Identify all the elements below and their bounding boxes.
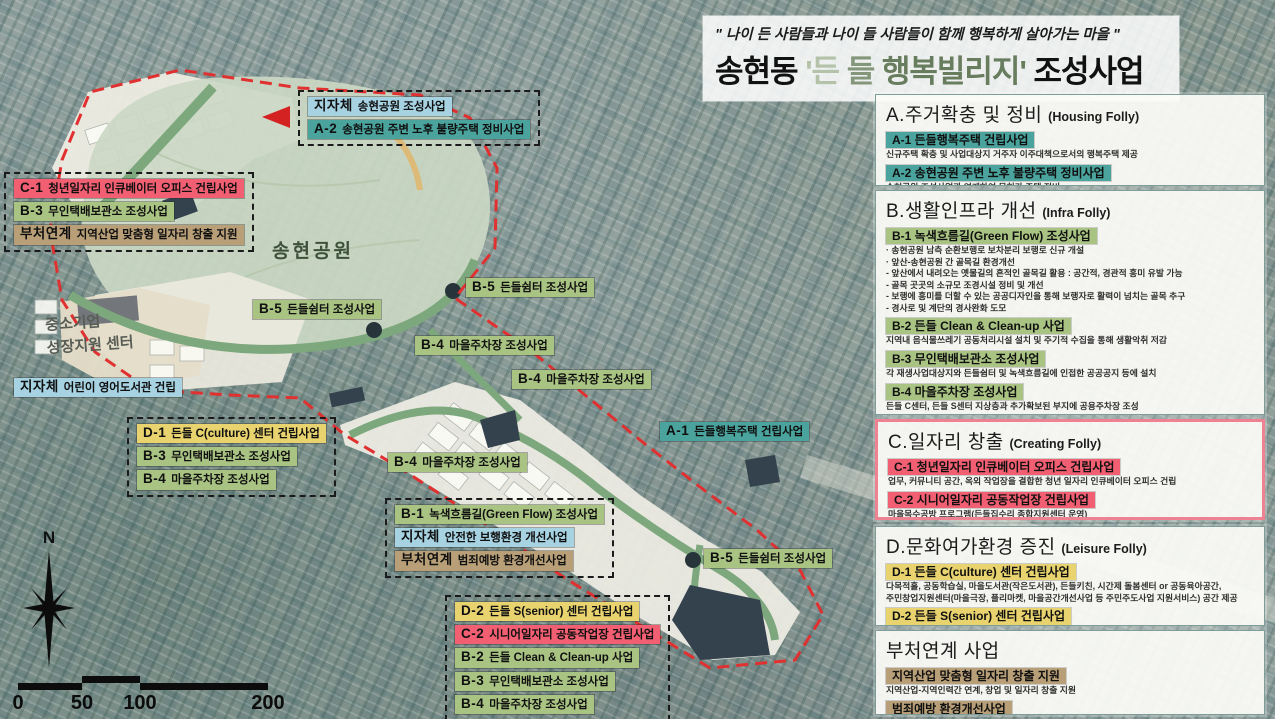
section-heading-ko: D.문화여가환경 증진: [886, 537, 1056, 558]
scale-tick: 0: [12, 692, 23, 715]
callout-box-west: C-1 청년일자리 인큐베이터 오피스 건립사업 B-3 무인택배보관소 조성사…: [4, 172, 254, 252]
scale-bar-bottom-row: [18, 683, 268, 690]
legend-item-desc: 지역내 음식물쓰레기 공동처리시설 설치 및 주기적 수집을 통해 생활악취 저…: [886, 335, 1254, 346]
label-prefix: C-1: [20, 180, 43, 196]
satellite-background: 송현공원 중소기업 성장지원 센터 지자체 송현공원 조성사업 A-2 송현공원…: [0, 0, 1275, 719]
label-prefix: B-2: [461, 649, 484, 665]
legend-item-label: B-3 무인택배보관소 조성사업: [886, 351, 1045, 367]
label-b2-cleanup: B-2 든들 Clean & Clean-up 사업: [455, 648, 639, 667]
park-name-label: 송현공원: [272, 236, 354, 263]
section-heading-ko: A.주거확충 및 정비: [886, 105, 1042, 126]
title-part: 들: [839, 54, 874, 89]
scale-bar: 0 50 100 200: [18, 676, 268, 716]
legend-item: C-1 청년일자리 인큐베이터 오피스 건립사업 업무, 커뮤니티 공간, 옥외…: [888, 457, 1252, 488]
legend-section-jobs: C.일자리 창출 (Creating Folly) C-1 청년일자리 인큐베이…: [875, 419, 1265, 520]
label-b3-lockers: B-3 무인택배보관소 조성사업: [14, 202, 174, 221]
label-text: 시니어일자리 공동작업장 건립사업: [489, 629, 654, 642]
title-part: 송현동: [715, 54, 805, 89]
section-heading: C.일자리 창출 (Creating Folly): [888, 427, 1252, 454]
label-text: 지역산업 맞춤형 일자리 창출 지원: [77, 229, 238, 242]
label-text: 마을주차장 조성사업: [489, 699, 587, 712]
legend-section-housing: A.주거확충 및 정비 (Housing Folly) A-1 든들행복주택 건…: [875, 94, 1265, 186]
label-prefix: A-2: [314, 121, 337, 137]
label-text: 마을주차장 조성사업: [449, 340, 547, 353]
legend-item-desc: 든들 C센터, 든들 S센터 지상층과 추가확보된 부지에 공용주차장 조성: [886, 401, 1254, 412]
legend-item-label: C-1 청년일자리 인큐베이터 오피스 건립사업: [888, 459, 1120, 475]
label-prefix: D-2: [461, 603, 484, 619]
scale-tick: 50: [71, 692, 93, 715]
label-prefix: A-1: [666, 423, 689, 439]
compass-star-icon: [19, 548, 79, 670]
label-prefix: B-4: [518, 371, 541, 387]
label-prefix: D-1: [143, 425, 166, 441]
label-prefix: B-5: [259, 301, 282, 317]
callout-box-park-north: 지자체 송현공원 조성사업 A-2 송현공원 주변 노후 불량주택 정비사업: [298, 90, 540, 146]
label-text: 어린이 영어도서관 건립: [64, 382, 176, 395]
legend-item: 지역산업 맞춤형 일자리 창출 지원 지역산업-지역인력간 연계, 창업 및 일…: [886, 666, 1254, 697]
map-chip-a1-happiness-housing: A-1 든들행복주택 건립사업: [660, 422, 809, 441]
legend-section-leisure: D.문화여가환경 증진 (Leisure Folly) D-1 든들 C(cul…: [875, 526, 1265, 626]
label-text: 청년일자리 인큐베이터 오피스 건립사업: [48, 183, 237, 196]
label-text: 든들 S(senior) 센터 건립사업: [489, 606, 633, 619]
label-prefix: B-4: [421, 337, 444, 353]
title-part: 행복빌리지': [874, 54, 1026, 89]
label-prefix: 부처연계: [20, 226, 72, 242]
section-heading: B.생활인프라 개선 (Infra Folly): [886, 196, 1254, 223]
legend-item-desc: 신규주택 확충 및 사업대상지 거주자 이주대책으로서의 행복주택 제공: [886, 149, 1254, 160]
scale-bar-top-row: [18, 676, 268, 683]
legend-section-ministry: 부처연계 사업 지역산업 맞춤형 일자리 창출 지원 지역산업-지역인력간 연계…: [875, 630, 1265, 715]
label-text: 든들쉼터 조성사업: [738, 553, 826, 566]
scale-ticks: 0 50 100 200: [18, 692, 268, 716]
legend-item: D-1 든들 C(culture) 센터 건립사업 다목적홀, 공동학습실, 마…: [886, 562, 1254, 604]
legend-item: C-2 시니어일자리 공동작업장 건립사업 마을목수공방 프로그램(든들집수리 …: [888, 490, 1252, 520]
legend-item-label: B-1 녹색흐름길(Green Flow) 조성사업: [886, 228, 1097, 244]
label-b3-lockers: B-3 무인택배보관소 조성사업: [137, 447, 297, 466]
label-prefix: B-3: [143, 448, 166, 464]
label-prefix: B-5: [472, 279, 495, 295]
label-prefix: B-3: [20, 203, 43, 219]
section-heading: A.주거확충 및 정비 (Housing Folly): [886, 100, 1254, 127]
section-heading-ko: B.생활인프라 개선: [886, 201, 1037, 222]
legend-item-desc: 마을목수공방 프로그램(든들집수리 종합지원센터 운영) 시니어 일자리 지원센…: [888, 509, 1252, 520]
label-prefix: B-4: [394, 454, 417, 470]
callout-box-culture-center: D-1 든들 C(culture) 센터 건립사업 B-3 무인택배보관소 조성…: [127, 417, 336, 497]
label-park-project: 지자체 송현공원 조성사업: [308, 97, 452, 116]
legend-item-label: C-2 시니어일자리 공동작업장 건립사업: [888, 492, 1095, 508]
label-b3-lockers: B-3 무인택배보관소 조성사업: [455, 672, 615, 691]
section-heading-en: (Infra Folly): [1042, 206, 1110, 220]
legend-item: B-3 무인택배보관소 조성사업 각 재생사업대상지와 든들쉼터 및 녹색흐름길…: [886, 349, 1254, 380]
label-text: 든들행복주택 건립사업: [694, 426, 803, 439]
map-chip-b5-south: B-5 든들쉼터 조성사업: [704, 549, 832, 568]
legend-item-label: B-4 마을주차장 조성사업: [886, 384, 1023, 400]
label-text: 송현공원 조성사업: [358, 101, 446, 114]
callout-box-senior-center: D-2 든들 S(senior) 센터 건립사업 C-2 시니어일자리 공동작업…: [445, 595, 670, 719]
compass-rose: N: [16, 528, 82, 676]
legend-item: A-2 송현공원 주변 노후 불량주택 정비사업 송현공원 조성사업과 연계하여…: [886, 163, 1254, 186]
legend-item-desc: 지역산업-지역인력간 연계, 창업 및 일자리 창출 지원: [886, 685, 1254, 696]
label-text: 든들쉼터 조성사업: [500, 282, 588, 295]
callout-box-green-flow: B-1 녹색흐름길(Green Flow) 조성사업 지자체 안전한 보행환경 …: [385, 498, 614, 578]
label-prefix: 지자체: [401, 529, 440, 545]
section-heading-ko: C.일자리 창출: [888, 432, 1004, 453]
scale-tick: 100: [123, 692, 156, 715]
sme-center-label: 중소기업 성장지원 센터: [45, 309, 135, 360]
label-c2-senior-workshop: C-2 시니어일자리 공동작업장 건립사업: [455, 625, 660, 644]
map-chip-childrens-library: 지자체 어린이 영어도서관 건립: [14, 378, 182, 397]
label-prefix: B-4: [461, 696, 484, 712]
section-heading-en: (Housing Folly): [1048, 110, 1139, 124]
label-a2-housing-renewal: A-2 송현공원 주변 노후 불량주택 정비사업: [308, 120, 530, 139]
legend-item-label: 지역산업 맞춤형 일자리 창출 지원: [886, 668, 1066, 684]
label-prefix: B-3: [461, 673, 484, 689]
label-text: 무인택배보관소 조성사업: [48, 206, 168, 219]
section-heading: 부처연계 사업: [886, 636, 1254, 663]
map-chip-b5-east: B-5 든들쉼터 조성사업: [466, 278, 594, 297]
label-text: 범죄예방 환경개선사업: [458, 555, 567, 568]
title-part: 조성사업: [1026, 54, 1144, 89]
page-title: 송현동 '든 들 행복빌리지' 조성사업: [715, 46, 1167, 91]
label-b4-parking: B-4 마을주차장 조성사업: [137, 470, 276, 489]
legend-item: B-1 녹색흐름길(Green Flow) 조성사업 · 송현공원 남측 순환보…: [886, 226, 1254, 314]
legend-item: B-5 든들쉼터 조성사업 송현공원 인근 보행로와 연계하여 쌈지공간을 활용…: [886, 414, 1254, 415]
label-b4-parking: B-4 마을주차장 조성사업: [455, 695, 594, 714]
legend-item: B-2 든들 Clean & Clean-up 사업 지역내 음식물쓰레기 공동…: [886, 316, 1254, 347]
label-text: 마을주차장 조성사업: [422, 457, 520, 470]
label-prefix: B-1: [401, 506, 424, 522]
legend-item-label: D-1 든들 C(culture) 센터 건립사업: [886, 564, 1076, 580]
legend-item: 범죄예방 환경개선사업 범죄취약지역 발굴 및 개선 등을 통해 골목길 환경 …: [886, 699, 1254, 715]
label-text: 녹색흐름길(Green Flow) 조성사업: [429, 509, 598, 522]
label-c1-incubator: C-1 청년일자리 인큐베이터 오피스 건립사업: [14, 179, 244, 198]
map-chip-b4-3: B-4 마을주차장 조성사업: [388, 453, 527, 472]
label-text: 마을주차장 조성사업: [171, 474, 269, 487]
title-block: " 나이 든 사람들과 나이 들 사람들이 함께 행복하게 살아가는 마을 " …: [703, 16, 1179, 101]
legend-item-label: 범죄예방 환경개선사업: [886, 701, 1012, 715]
label-text: 무인택배보관소 조성사업: [489, 676, 609, 689]
legend-item-label: B-2 든들 Clean & Clean-up 사업: [886, 318, 1071, 334]
legend-item-desc: 각 재생사업대상지와 든들쉼터 및 녹색흐름길에 인접한 공공공지 등에 설치: [886, 368, 1254, 379]
label-text: 마을주차장 조성사업: [546, 374, 644, 387]
label-prefix: C-2: [461, 626, 484, 642]
map-chip-b4-1: B-4 마을주차장 조성사업: [415, 336, 554, 355]
label-text: 안전한 보행환경 개선사업: [445, 532, 568, 545]
label-prefix: 부처연계: [401, 552, 453, 568]
map-chip-b5-park: B-5 든들쉼터 조성사업: [253, 300, 381, 319]
label-d2-senior-center: D-2 든들 S(senior) 센터 건립사업: [455, 602, 639, 621]
legend-item-desc: 송현공원 조성사업과 연계하여 무허가 주택 정비: [886, 182, 1254, 186]
scale-tick: 200: [251, 692, 284, 715]
legend-item-desc: 다목적홀, 공동학습실, 마을도서관(작은도서관), 든들키친, 시간제 돌봄센…: [886, 581, 1254, 604]
map-chip-b4-2: B-4 마을주차장 조성사업: [512, 370, 651, 389]
label-crime-prevention: 부처연계 범죄예방 환경개선사업: [395, 551, 573, 570]
legend-item-desc: 업무, 커뮤니티 공간, 옥외 작업장을 결합한 청년 일자리 인큐베이터 오피…: [888, 476, 1252, 487]
compass-north-label: N: [16, 528, 82, 548]
label-safe-walk: 지자체 안전한 보행환경 개선사업: [395, 528, 574, 547]
title-part: '든: [805, 54, 839, 89]
label-text: 든들쉼터 조성사업: [287, 304, 375, 317]
legend-item-desc: · 송현공원 남측 순환보행로 보차분리 보행로 신규 개설 · 앞산-송현공원…: [886, 245, 1254, 314]
section-heading-en: (Leisure Folly): [1061, 542, 1146, 556]
label-text: 든들 Clean & Clean-up 사업: [489, 652, 633, 665]
legend-item-label: D-2 든들 S(senior) 센터 건립사업: [886, 608, 1071, 624]
label-prefix: B-4: [143, 471, 166, 487]
label-prefix: 지자체: [20, 379, 59, 395]
label-text: 든들 C(culture) 센터 건립사업: [171, 428, 320, 441]
title-quote: " 나이 든 사람들과 나이 들 사람들이 함께 행복하게 살아가는 마을 ": [715, 23, 1167, 44]
legend-item-label: A-1 든들행복주택 건립사업: [886, 132, 1034, 148]
legend-item: B-4 마을주차장 조성사업 든들 C센터, 든들 S센터 지상층과 추가확보된…: [886, 382, 1254, 413]
legend-section-infra: B.생활인프라 개선 (Infra Folly) B-1 녹색흐름길(Green…: [875, 190, 1265, 415]
label-text: 송현공원 주변 노후 불량주택 정비사업: [342, 124, 524, 137]
section-heading-ko: 부처연계 사업: [886, 641, 1000, 662]
section-heading: D.문화여가환경 증진 (Leisure Folly): [886, 532, 1254, 559]
label-b1-green-flow: B-1 녹색흐름길(Green Flow) 조성사업: [395, 505, 604, 524]
label-text: 무인택배보관소 조성사업: [171, 451, 291, 464]
legend-item: D-2 든들 S(senior) 센터 건립사업 프로그램별 운영실 및 다목적…: [886, 606, 1254, 626]
label-prefix: B-5: [710, 550, 733, 566]
label-ministry-jobs: 부처연계 지역산업 맞춤형 일자리 창출 지원: [14, 225, 244, 244]
legend-item: A-1 든들행복주택 건립사업 신규주택 확충 및 사업대상지 거주자 이주대책…: [886, 130, 1254, 161]
label-prefix: 지자체: [314, 98, 353, 114]
section-heading-en: (Creating Folly): [1009, 437, 1101, 451]
legend-item-label: A-2 송현공원 주변 노후 불량주택 정비사업: [886, 165, 1111, 181]
label-d1-culture-center: D-1 든들 C(culture) 센터 건립사업: [137, 424, 326, 443]
